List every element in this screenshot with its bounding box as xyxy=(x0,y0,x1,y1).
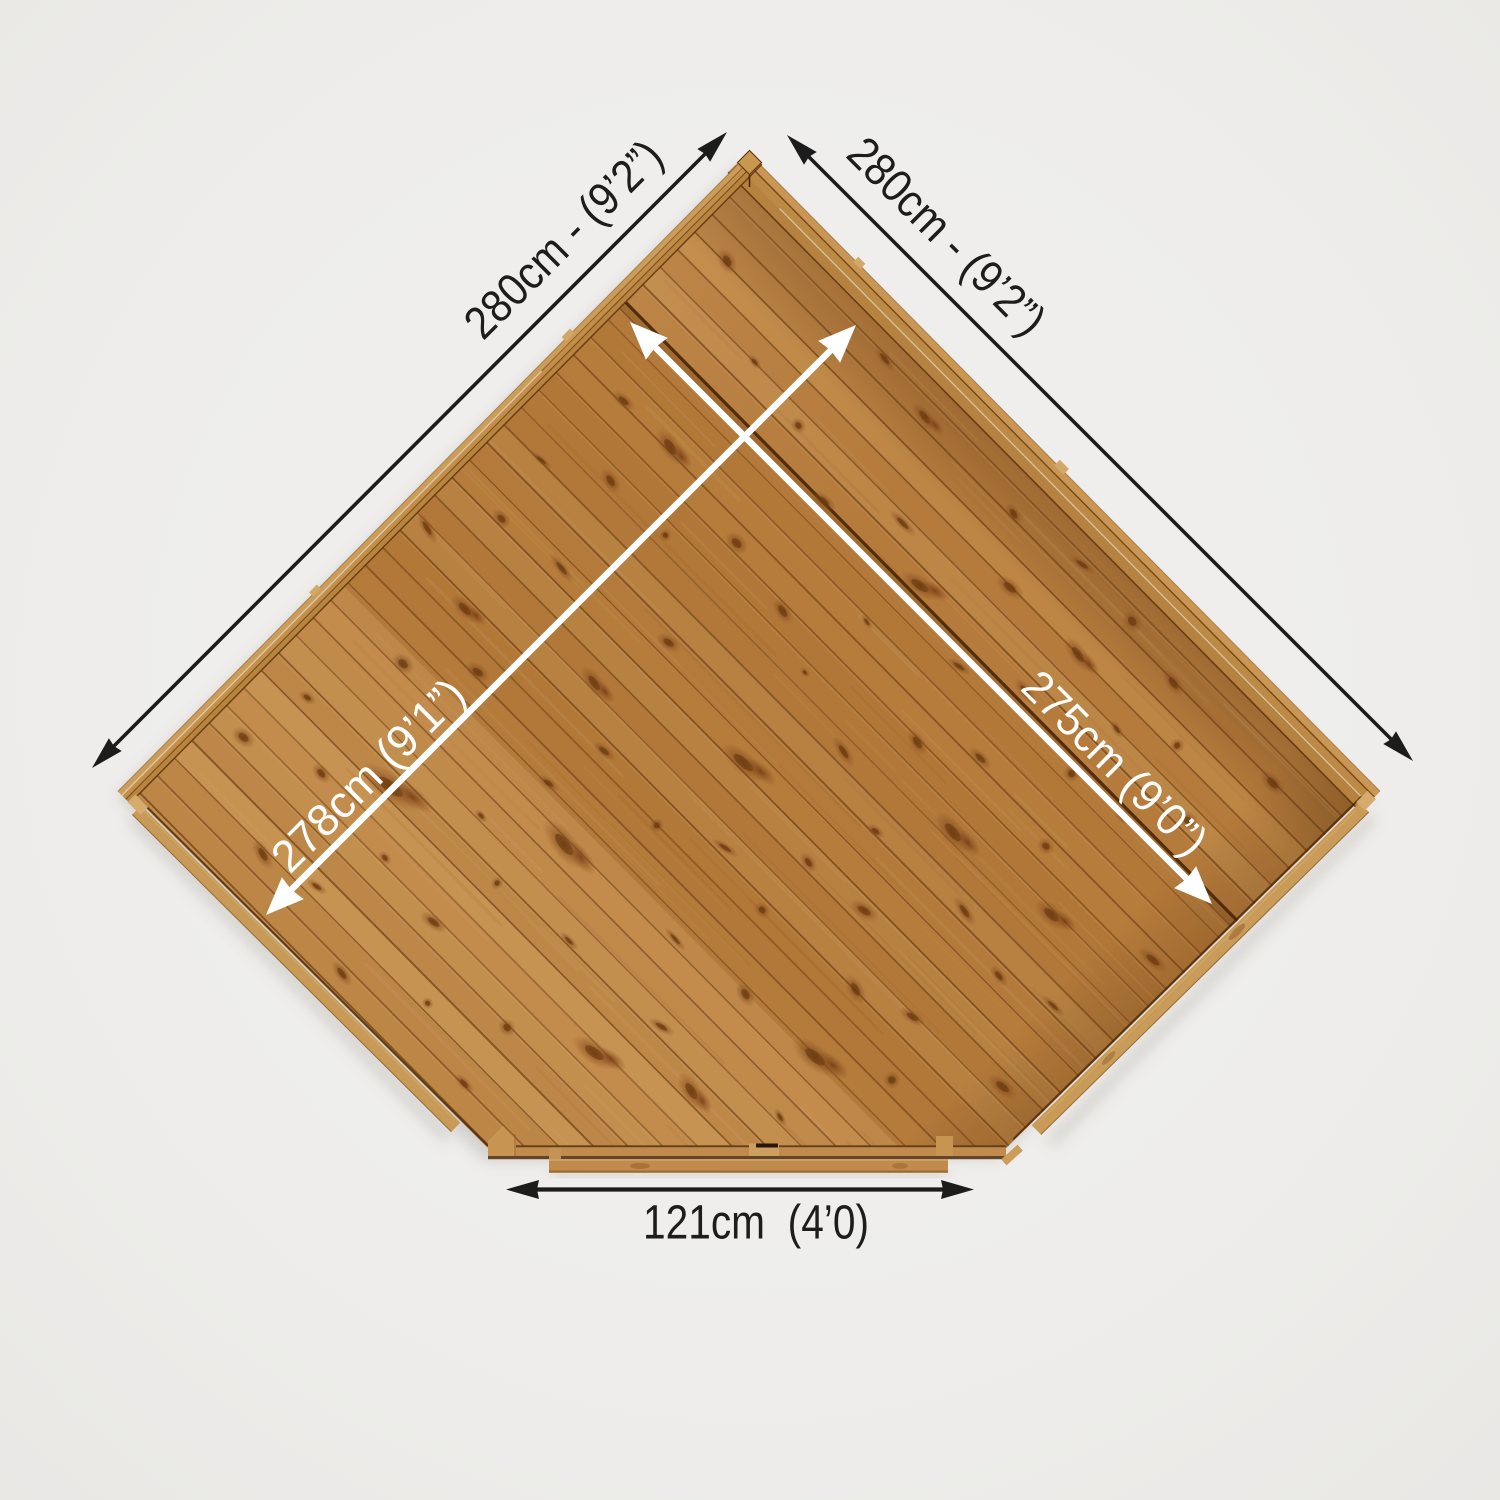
svg-text:121cm (4’0): 121cm (4’0) xyxy=(643,1197,869,1250)
